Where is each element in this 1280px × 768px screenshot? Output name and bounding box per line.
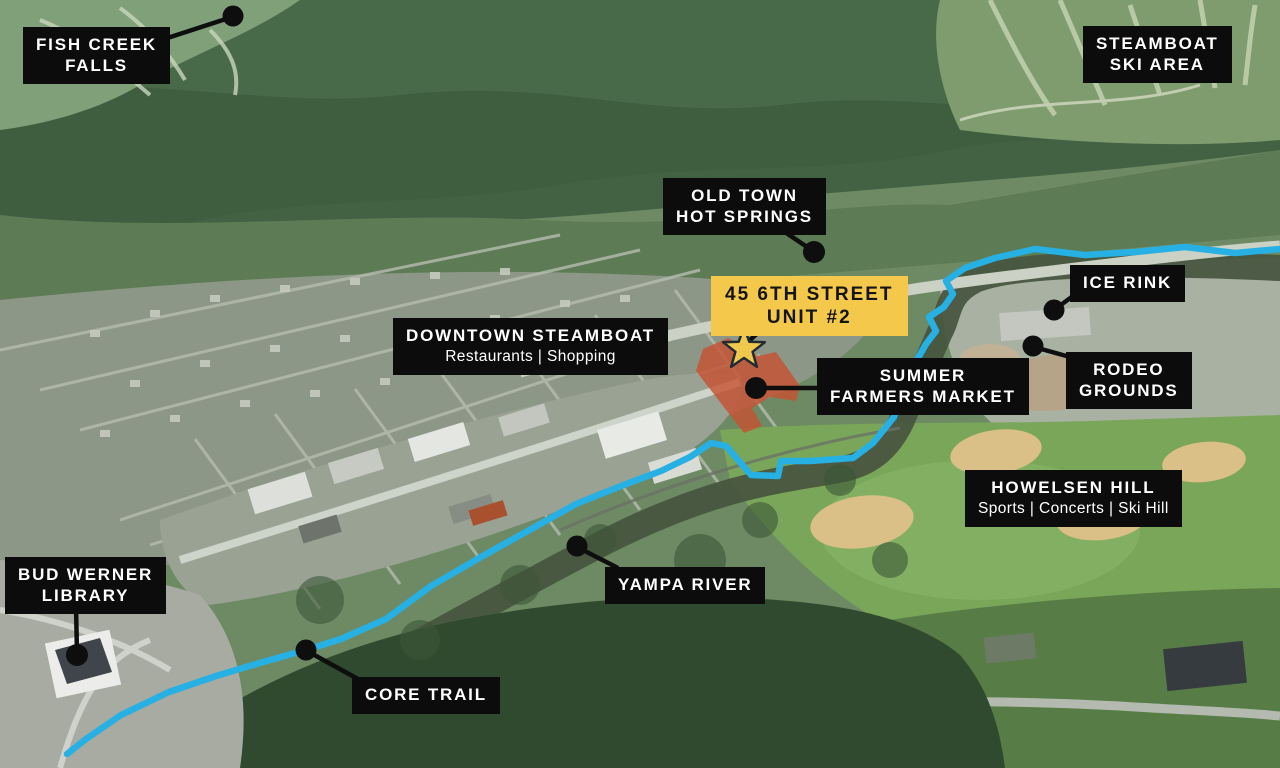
aerial-location-map: { "map": { "description": "Aerial locati…	[0, 0, 1280, 768]
label-yampa-river: YAMPA RIVER	[605, 567, 765, 604]
dot-old-town-hot-springs	[803, 241, 825, 263]
label-howelsen-hill: HOWELSEN HILL Sports | Concerts | Ski Hi…	[965, 470, 1182, 527]
label-line: CORE TRAIL	[365, 685, 487, 706]
label-line: DOWNTOWN STEAMBOAT	[406, 326, 655, 347]
label-rodeo-grounds: RODEO GROUNDS	[1066, 352, 1192, 409]
dot-yampa-river	[567, 536, 588, 557]
label-line: LIBRARY	[18, 586, 153, 607]
label-property-address: 45 6TH STREET UNIT #2	[711, 276, 908, 336]
label-line: FALLS	[36, 56, 157, 77]
label-line: FARMERS MARKET	[830, 387, 1016, 408]
label-summer-farmers-market: SUMMER FARMERS MARKET	[817, 358, 1029, 415]
label-line: SKI AREA	[1096, 55, 1219, 76]
label-line: HOWELSEN HILL	[978, 478, 1169, 499]
label-core-trail: CORE TRAIL	[352, 677, 500, 714]
label-line: 45 6TH STREET	[725, 283, 894, 306]
label-fish-creek-falls: FISH CREEK FALLS	[23, 27, 170, 84]
dot-ice-rink	[1044, 300, 1065, 321]
label-line: HOT SPRINGS	[676, 207, 813, 228]
label-line: RODEO	[1079, 360, 1179, 381]
label-subtitle: Sports | Concerts | Ski Hill	[978, 500, 1169, 519]
label-old-town-hot-springs: OLD TOWN HOT SPRINGS	[663, 178, 826, 235]
label-line: FISH CREEK	[36, 35, 157, 56]
dot-fish-creek-falls	[223, 6, 244, 27]
label-steamboat-ski-area: STEAMBOAT SKI AREA	[1083, 26, 1232, 83]
label-line: ICE RINK	[1083, 273, 1172, 294]
label-downtown-steamboat: DOWNTOWN STEAMBOAT Restaurants | Shoppin…	[393, 318, 668, 375]
dot-bud-werner-library	[66, 644, 88, 666]
label-line: OLD TOWN	[676, 186, 813, 207]
label-line: SUMMER	[830, 366, 1016, 387]
dot-farmers-market	[745, 377, 767, 399]
dot-core-trail	[296, 640, 317, 661]
label-line: STEAMBOAT	[1096, 34, 1219, 55]
label-ice-rink: ICE RINK	[1070, 265, 1185, 302]
label-line: GROUNDS	[1079, 381, 1179, 402]
dot-rodeo-grounds	[1023, 336, 1044, 357]
label-line: BUD WERNER	[18, 565, 153, 586]
label-bud-werner-library: BUD WERNER LIBRARY	[5, 557, 166, 614]
label-line: UNIT #2	[725, 306, 894, 329]
label-subtitle: Restaurants | Shopping	[406, 348, 655, 367]
label-line: YAMPA RIVER	[618, 575, 752, 596]
